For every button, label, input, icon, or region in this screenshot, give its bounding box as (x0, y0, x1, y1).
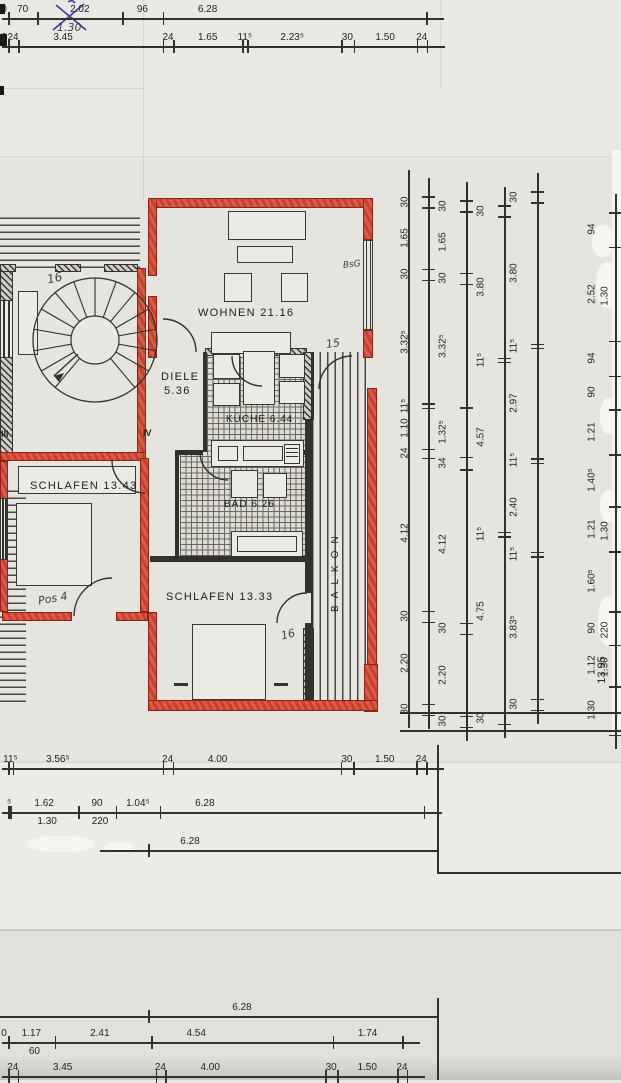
bottom2-row-1-tick (402, 1036, 404, 1049)
right-chain-5-line (615, 194, 617, 749)
bottom1-row-2-label-sub: 220 (92, 816, 109, 827)
bottom1-row-2-label-sub: 1.30 (37, 816, 56, 827)
bottom1-row-2-label: 90 (91, 798, 102, 809)
right-chain-4-tick (531, 458, 544, 460)
right-chain-2-label: 30 (438, 623, 449, 634)
right-chain-3-tick (498, 216, 511, 218)
bottom2-row-2-label: 24 (396, 1062, 407, 1073)
right-chain-5-tick (609, 454, 621, 456)
right-chain-1-tick (422, 269, 435, 271)
right-chain-5-tick (609, 506, 621, 508)
bottom2-row-1-label: 1.74 (358, 1028, 377, 1039)
bottom1-row-1-line (2, 768, 444, 770)
bottom2-header-line (0, 1016, 437, 1018)
right-chain-3-tick (498, 536, 511, 538)
right-chain-5-tick (609, 341, 621, 343)
top-row-1-tick (426, 12, 428, 25)
top-row-2-label: 1.50 (375, 32, 394, 43)
right-chain-5-label: 1.40⁵ (587, 468, 598, 492)
right-chain-2-line (466, 182, 468, 741)
right-chain-3-tick (498, 724, 511, 726)
right-chain-2-label: 30 (438, 716, 449, 727)
right-chain-2-label: 34 (438, 457, 449, 468)
bottom1-row-2-tick (160, 806, 162, 819)
right-chain-4-tick (531, 552, 544, 554)
top-row-2-label: 3.45 (53, 32, 72, 43)
right-chain-1-label: 2.20 (400, 653, 411, 672)
top-row-2-label: 24 (162, 32, 173, 43)
right-chain-3-label: 4.57 (476, 427, 487, 446)
right-chain-1-label: 11⁵ (400, 398, 411, 413)
right-chain-1-label: 30 (400, 704, 411, 715)
top-row-1-label: 6.28 (198, 4, 217, 15)
top-row-1-tick (122, 12, 124, 25)
right-chain-2-label: 2.20 (438, 665, 449, 684)
right-chain-5-tick (609, 645, 621, 647)
bottom1-row-3-line (100, 850, 437, 852)
bottom1-row-1-tick (353, 762, 355, 775)
right-chain-2-tick (460, 457, 473, 459)
right-chain-3-tick (498, 713, 511, 715)
right-chain-2-tick (460, 211, 473, 213)
bottom2-row-2-label: 4.00 (200, 1062, 219, 1073)
bottom1-row-2-label: 6.28 (195, 798, 214, 809)
right-chain-5-label: 94 (587, 353, 598, 364)
right-chain-5-tick (609, 212, 621, 214)
right-chain-1-tick (422, 715, 435, 717)
right-chain-1-tick (422, 449, 435, 451)
right-chain-5-label: 1.21 (587, 519, 598, 538)
right-chain-5-tick (609, 551, 621, 553)
top-row-2-label: 30 (342, 32, 353, 43)
right-chain-5-tick (609, 376, 621, 378)
right-chain-1-tick (422, 196, 435, 198)
right-chain-5-label: 90 (587, 622, 598, 633)
right-chain-1-label: 4.12 (400, 523, 411, 542)
right-chain-3-label: 4.75 (476, 601, 487, 620)
right-chain-2-tick (460, 623, 473, 625)
dimension-annotations: 301.65303.32⁵11⁵1.10244.12302.2030301.65… (0, 0, 621, 1080)
top-row-2-label: 11⁵ (238, 32, 253, 43)
right-chain-1-tick (422, 408, 435, 410)
right-chain-4-label: 3.83⁵ (509, 616, 520, 640)
bottom1-row-1-label: 4.00 (208, 754, 227, 765)
bottom1-row-1-label: 24 (162, 754, 173, 765)
right-chain-2-tick (460, 200, 473, 202)
right-chain-5-label: 1.30 (587, 701, 598, 720)
bottom1-row-2-tick (424, 806, 426, 819)
bottom1-row-1-label: 30 (341, 754, 352, 765)
top-row-1-tick (37, 12, 39, 25)
bottom1-row-3-tick (148, 844, 150, 857)
top-row-2-label: 0 (1, 32, 7, 43)
bottom1-row-1-label: 1.50 (375, 754, 394, 765)
right-chain-4-tick (531, 202, 544, 204)
right-chain-5-label: 1.60⁵ (587, 569, 598, 593)
bottom2-row-1-label: 4.54 (186, 1028, 205, 1039)
top-row-1-label: 2.02 (70, 4, 89, 15)
right-chain-5-label-sub: 220 (600, 622, 611, 639)
bottom2-header-tick (437, 1010, 439, 1023)
right-chain-2-tick (460, 634, 473, 636)
right-chain-4-label: 30 (509, 699, 520, 710)
right-chain-3-label: 11⁵ (476, 352, 487, 367)
right-chain-3-tick (498, 362, 511, 364)
top-row-1-line (2, 18, 444, 20)
bottom2-row-1-label: 1.17 (22, 1028, 41, 1039)
right-chain-1-label: 30 (400, 196, 411, 207)
right-chain-1-tick (422, 207, 435, 209)
right-chain-4-label: 2.40 (509, 497, 520, 516)
bottom1-row-2-label: ⁵ (7, 798, 11, 809)
top-row-1-label: 70 (17, 4, 28, 15)
right-chain-2-label: 30 (438, 200, 449, 211)
right-chain-1-label: 30 (400, 611, 411, 622)
top-row-2-line (2, 46, 445, 48)
bottom2-row-2-line (2, 1076, 425, 1078)
bottom2-row-2-tick (337, 1070, 339, 1083)
bottom1-row-1-label: 24 (416, 754, 427, 765)
bottom2-row-1-label: 2.41 (90, 1028, 109, 1039)
bottom1-row-2-label: 1.04⁵ (126, 798, 150, 809)
right-chain-1-tick (422, 611, 435, 613)
right-chain-2-label: 1.65 (438, 232, 449, 251)
bottom2-row-1-label: 0 (1, 1028, 7, 1039)
right-chain-1-tick (422, 704, 435, 706)
bottom2-row-1-tick (55, 1036, 57, 1049)
top-row-1-label: 0 (1, 4, 7, 15)
right-chain-2-label: 3.32⁵ (438, 334, 449, 358)
bottom2-header-tick (148, 1010, 150, 1023)
bottom1-row-1-label: 11⁵ (3, 754, 18, 765)
right-chain-4-tick (531, 348, 544, 350)
right-chain-3-label: 3.80 (476, 277, 487, 296)
right-chain-1-label: 30 (400, 269, 411, 280)
right-chain-1-label: 3.32⁵ (400, 330, 411, 354)
right-chain-3-label: 30 (476, 713, 487, 724)
right-chain-5-label-sub: 1.30 (600, 521, 611, 540)
right-chain-2-tick (460, 469, 473, 471)
right-chain-5-label: 90 (587, 387, 598, 398)
bottom1-row-3-label: 6.28 (180, 836, 199, 847)
right-chain-4-label: 30 (509, 191, 520, 202)
right-chain-4-tick (531, 191, 544, 193)
right-chain-4-label: 2.97 (509, 393, 520, 412)
right-chain-1-tick (422, 280, 435, 282)
right-chain-2-tick (460, 407, 473, 409)
right-chain-4-label: 3.80 (509, 263, 520, 282)
top-row-2-label: 24 (7, 32, 18, 43)
top-row-1-label: 96 (137, 4, 148, 15)
right-chain-1-label: 1.65 (400, 228, 411, 247)
right-chain-4-label: 11⁵ (509, 453, 520, 468)
right-chain-4-tick (531, 710, 544, 712)
right-chain-2-tick (460, 273, 473, 275)
bottom2-row-2-label: 1.50 (357, 1062, 376, 1073)
right-chain-5-tick (609, 611, 621, 613)
right-chain-4-tick (531, 463, 544, 465)
right-chain-3-line (504, 187, 506, 738)
bottom2-row-2-label: 30 (326, 1062, 337, 1073)
right-chain-3-label: 11⁵ (476, 527, 487, 542)
bottom2-row-1-tick (8, 1036, 10, 1049)
right-chain-1-tick (422, 403, 435, 405)
right-chain-1-line (428, 178, 430, 729)
right-chain-4-label: 11⁵ (509, 338, 520, 353)
right-chain-4-tick (531, 556, 544, 558)
right-chain-1-label: 1.10 (400, 418, 411, 437)
right-chain-5-tick (609, 247, 621, 249)
right-chain-5-label: 94 (587, 224, 598, 235)
right-chain-5-tick (609, 409, 621, 411)
right-chain-2-tick (460, 284, 473, 286)
bottom1-row-3-tick (437, 844, 439, 857)
bottom1-row-2-tick (78, 806, 80, 819)
right-chain-5-tick (609, 686, 621, 688)
right-chain-2-label: 1.32⁵ (438, 420, 449, 444)
bottom2-row-1-tick (151, 1036, 153, 1049)
right-chain-4-label: 11⁵ (509, 547, 520, 562)
right-chain-5-total: 13.95 (596, 656, 608, 684)
right-chain-5-label-sub: 1.30 (600, 286, 611, 305)
bottom2-header-label: 6.28 (232, 1002, 251, 1013)
right-chain-1-tick (422, 458, 435, 460)
top-row-2-label: 2.23⁵ (280, 32, 304, 43)
right-chain-2-tick (460, 716, 473, 718)
bottom2-row-2-label: 24 (155, 1062, 166, 1073)
bottom1-row-1-label: 3.56⁵ (46, 754, 70, 765)
right-chain-4-line (537, 173, 539, 724)
right-chain-1-tick (422, 622, 435, 624)
bottom2-row-2-label: 3.45 (53, 1062, 72, 1073)
scanned-floorplan-page: { "rooms": { "wohnen": "WOHNEN 21.16", "… (0, 0, 621, 1080)
right-chain-4-tick (531, 344, 544, 346)
right-chain-3-tick (498, 532, 511, 534)
bottom1-row-2-line (2, 812, 442, 814)
bottom2-row-1-tick (333, 1036, 335, 1049)
right-chain-3-tick (498, 358, 511, 360)
right-chain-5-tick (609, 735, 621, 737)
bottom2-row-1-line (2, 1042, 420, 1044)
right-chain-2-label: 30 (438, 273, 449, 284)
bottom2-row-2-label: 24 (7, 1062, 18, 1073)
bottom2-row-1-label-sub: 60 (29, 1046, 40, 1057)
right-chain-2-label: 4.12 (438, 535, 449, 554)
right-chain-5-label: 1.21 (587, 422, 598, 441)
top-row-2-label: 24 (416, 32, 427, 43)
right-chain-3-tick (498, 205, 511, 207)
top-row-2-tick (354, 40, 356, 53)
bottom1-row-2-tick (116, 806, 118, 819)
top-row-2-label: 1.65 (198, 32, 217, 43)
bottom1-row-2-label: 1.62 (34, 798, 53, 809)
right-chain-1-label: 24 (400, 447, 411, 458)
top-row-1-tick (8, 12, 10, 25)
right-chain-4-tick (531, 699, 544, 701)
right-chain-5-label: 2.52 (587, 284, 598, 303)
top-row-1-tick (163, 12, 165, 25)
right-chain-2-tick (460, 727, 473, 729)
right-chain-3-label: 30 (476, 205, 487, 216)
